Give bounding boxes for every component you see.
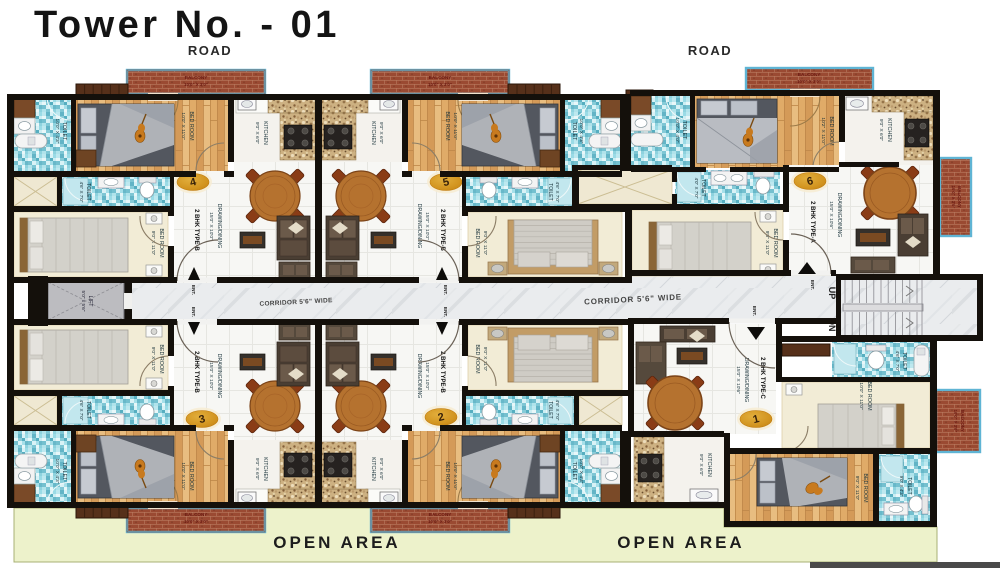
svg-text:15'0" X 10'0": 15'0" X 10'0" — [208, 362, 214, 390]
svg-text:ENT.: ENT. — [443, 307, 448, 317]
svg-text:ENT.: ENT. — [191, 307, 196, 317]
svg-text:9'0" X 11'0": 9'0" X 11'0" — [482, 347, 488, 372]
svg-text:TOILET: TOILET — [547, 183, 553, 200]
svg-text:5'0" x 5'6": 5'0" x 5'6" — [80, 291, 86, 312]
svg-text:10'0" X 3'0": 10'0" X 3'0" — [428, 82, 452, 87]
svg-text:BED ROOM: BED ROOM — [772, 228, 778, 258]
svg-text:15'0" X 10'0": 15'0" X 10'0" — [208, 212, 214, 240]
svg-text:ENT.: ENT. — [443, 285, 448, 295]
svg-text:ENT.: ENT. — [810, 280, 815, 290]
svg-text:10'0" X 11'0": 10'0" X 11'0" — [180, 112, 186, 140]
svg-text:10'0" X 3'0": 10'0" X 3'0" — [184, 82, 208, 87]
svg-text:BED ROOM: BED ROOM — [158, 228, 164, 258]
svg-text:2 BHK TYPE-C: 2 BHK TYPE-C — [759, 357, 765, 399]
svg-text:15'0" X 10'6": 15'0" X 10'6" — [735, 366, 741, 394]
svg-text:9'0" X 6'0": 9'0" X 6'0" — [254, 122, 260, 144]
svg-text:DRAWING/DINING: DRAWING/DINING — [836, 193, 842, 237]
svg-text:DRAWING/DINING: DRAWING/DINING — [416, 204, 422, 248]
svg-text:Tower No. - 01: Tower No. - 01 — [34, 4, 340, 46]
svg-text:10'0" X 3'0": 10'0" X 3'0" — [797, 79, 821, 84]
svg-text:2 BHK TYPE-A: 2 BHK TYPE-A — [809, 201, 815, 243]
svg-text:BED ROOM: BED ROOM — [188, 461, 194, 491]
svg-text:4'6" X 7'0": 4'6" X 7'0" — [555, 182, 560, 203]
svg-text:KITCHEN: KITCHEN — [706, 453, 712, 477]
svg-text:10'0" X 11'0": 10'0" X 11'0" — [858, 382, 864, 410]
svg-text:10'0" X 11'0": 10'0" X 11'0" — [180, 462, 186, 490]
svg-text:10'2" X 11'0": 10'2" X 11'0" — [820, 117, 826, 145]
svg-text:BED ROOM: BED ROOM — [444, 461, 450, 491]
svg-text:9'0" X 6'0": 9'0" X 6'0" — [698, 454, 704, 476]
svg-text:4'6" X 7'0": 4'6" X 7'0" — [895, 351, 900, 372]
svg-text:BALCONY: BALCONY — [429, 75, 452, 80]
svg-text:OPEN AREA: OPEN AREA — [273, 533, 400, 552]
svg-text:4'6" X 7'0": 4'6" X 7'0" — [555, 400, 560, 421]
svg-text:10'0" X 11'0": 10'0" X 11'0" — [452, 462, 458, 490]
svg-text:4'6" X 7'0": 4'6" X 7'0" — [79, 182, 84, 203]
svg-text:2 BHK TYPE-B: 2 BHK TYPE-B — [439, 209, 445, 251]
svg-text:BED ROOM: BED ROOM — [188, 111, 194, 141]
svg-text:9'0" X 6'0": 9'0" X 6'0" — [378, 458, 384, 480]
svg-text:BED ROOM: BED ROOM — [866, 381, 872, 411]
svg-text:BALCONY: BALCONY — [960, 410, 965, 432]
svg-text:10'0" X 11'0": 10'0" X 11'0" — [452, 112, 458, 140]
svg-text:BALCONY: BALCONY — [185, 512, 208, 517]
svg-text:15'0" X 10'0": 15'0" X 10'0" — [424, 362, 430, 390]
svg-text:TOILET: TOILET — [61, 122, 67, 141]
svg-text:10'0" X 3'0": 10'0" X 3'0" — [951, 186, 956, 209]
svg-text:TOILET: TOILET — [681, 121, 687, 140]
svg-text:KITCHEN: KITCHEN — [886, 118, 892, 142]
svg-text:10'0" X 3'0": 10'0" X 3'0" — [184, 519, 208, 524]
svg-text:9'0" X 11'0": 9'0" X 11'0" — [854, 476, 860, 501]
svg-text:ENT.: ENT. — [191, 285, 196, 295]
svg-text:KITCHEN: KITCHEN — [370, 457, 376, 481]
svg-text:UP: UP — [827, 287, 837, 300]
svg-text:LIFT: LIFT — [87, 295, 93, 307]
svg-text:15'0" X 10'0": 15'0" X 10'0" — [424, 212, 430, 240]
svg-text:4'0" X 7'0": 4'0" X 7'0" — [694, 178, 699, 199]
svg-text:BED ROOM: BED ROOM — [444, 111, 450, 141]
svg-text:10'0" X 4'0": 10'0" X 4'0" — [674, 118, 680, 143]
svg-text:10'0" X 3'0": 10'0" X 3'0" — [428, 519, 452, 524]
svg-text:9'0" X 6'0": 9'0" X 6'0" — [378, 122, 384, 144]
svg-text:15'0" X 10'6": 15'0" X 10'6" — [828, 201, 834, 229]
svg-text:ROAD: ROAD — [688, 43, 732, 58]
svg-text:TOILET: TOILET — [906, 477, 912, 494]
svg-text:TOILET: TOILET — [571, 462, 577, 481]
svg-text:TOILET: TOILET — [85, 401, 91, 418]
svg-text:OPEN AREA: OPEN AREA — [617, 533, 744, 552]
svg-text:9'0" X 11'0": 9'0" X 11'0" — [482, 231, 488, 256]
svg-text:KITCHEN: KITCHEN — [370, 121, 376, 145]
svg-text:DRAWING/DINING: DRAWING/DINING — [216, 204, 222, 248]
svg-text:DRAWING/DINING: DRAWING/DINING — [216, 354, 222, 398]
svg-text:BED ROOM: BED ROOM — [158, 344, 164, 374]
svg-text:BED ROOM: BED ROOM — [828, 116, 834, 146]
svg-text:BALCONY: BALCONY — [798, 72, 821, 77]
svg-text:KITCHEN: KITCHEN — [262, 457, 268, 481]
svg-text:TOILET: TOILET — [700, 179, 706, 196]
svg-text:ENT.: ENT. — [752, 306, 757, 316]
svg-text:DRAWING/DINING: DRAWING/DINING — [416, 354, 422, 398]
svg-text:2 BHK TYPE-B: 2 BHK TYPE-B — [439, 351, 445, 393]
svg-text:10'0" X 3'0": 10'0" X 3'0" — [953, 410, 958, 433]
svg-text:10'0" X 4'3": 10'0" X 4'3" — [578, 119, 584, 144]
svg-text:TOILET: TOILET — [547, 401, 553, 418]
svg-text:ROAD: ROAD — [188, 43, 232, 58]
svg-text:BED ROOM: BED ROOM — [474, 344, 480, 374]
svg-text:BALCONY: BALCONY — [957, 186, 962, 208]
svg-text:4'6" X 7'0": 4'6" X 7'0" — [79, 400, 84, 421]
svg-text:10'0" X 4'3": 10'0" X 4'3" — [54, 119, 60, 144]
svg-text:9'0" X 4'3": 9'0" X 4'3" — [899, 476, 904, 497]
svg-text:9'0" X 6'0": 9'0" X 6'0" — [878, 119, 884, 141]
svg-text:BALCONY: BALCONY — [429, 512, 452, 517]
svg-text:BED ROOM: BED ROOM — [862, 473, 868, 503]
svg-text:BALCONY: BALCONY — [185, 75, 208, 80]
svg-text:9'0" X 6'0": 9'0" X 6'0" — [254, 458, 260, 480]
svg-text:TOILET: TOILET — [61, 462, 67, 481]
svg-text:TOILET: TOILET — [901, 352, 907, 369]
svg-text:10'0" X 4'3": 10'0" X 4'3" — [578, 459, 584, 484]
svg-text:TOILET: TOILET — [571, 122, 577, 141]
svg-text:TOILET: TOILET — [85, 183, 91, 200]
svg-text:10'0" X 4'3": 10'0" X 4'3" — [54, 459, 60, 484]
svg-text:KITCHEN: KITCHEN — [262, 121, 268, 145]
svg-text:DRAWING/DINING: DRAWING/DINING — [743, 358, 749, 402]
